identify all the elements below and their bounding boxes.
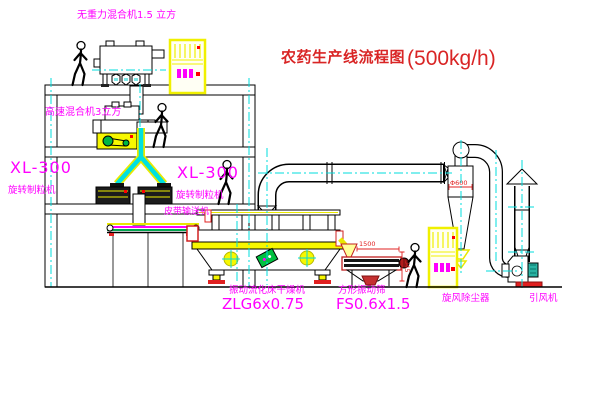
granulator-right-name: 旋转制粒机 xyxy=(176,191,224,201)
granulator-left xyxy=(96,187,130,204)
cyclone-label: 旋风除尘器 xyxy=(442,294,490,304)
dryer-model-label: ZLG6x0.75 xyxy=(222,297,304,312)
fan-label: 引风机 xyxy=(529,294,558,304)
sieve-length-dim: 1500 xyxy=(359,240,376,248)
granulator-right-model: XL-300 xyxy=(177,165,239,181)
fluid-bed-dryer xyxy=(187,210,343,284)
sieve-model-label: FS0.6x1.5 xyxy=(336,297,410,312)
title-capacity: (500kg/h) xyxy=(407,47,496,71)
control-cabinet-top xyxy=(170,40,205,93)
flow-diagram-canvas: 1500 345 Φ600 农药生产线流程图 (500kg/h) 无重力混合机1… xyxy=(0,0,600,403)
mid-mixer-label: 高速混合机3立方 xyxy=(45,108,121,118)
granulator-discharge-duct xyxy=(133,194,145,225)
cyclone-diameter-dim: Φ600 xyxy=(450,179,468,187)
exhaust-duct xyxy=(258,173,444,213)
person-top-floor xyxy=(73,42,87,86)
granulator-left-model: XL-300 xyxy=(10,160,72,176)
title-text: 农药生产线流程图 xyxy=(281,46,405,71)
belt-conveyor-label: 皮带输送机 xyxy=(164,208,209,217)
belt-conveyor xyxy=(107,224,199,287)
control-cabinet-bottom xyxy=(429,228,457,287)
drawing-title: 农药生产线流程图 (500kg/h) xyxy=(281,46,496,71)
granulator-left-name: 旋转制粒机 xyxy=(8,186,56,196)
top-mixer-label: 无重力混合机1.5 立方 xyxy=(77,11,176,21)
